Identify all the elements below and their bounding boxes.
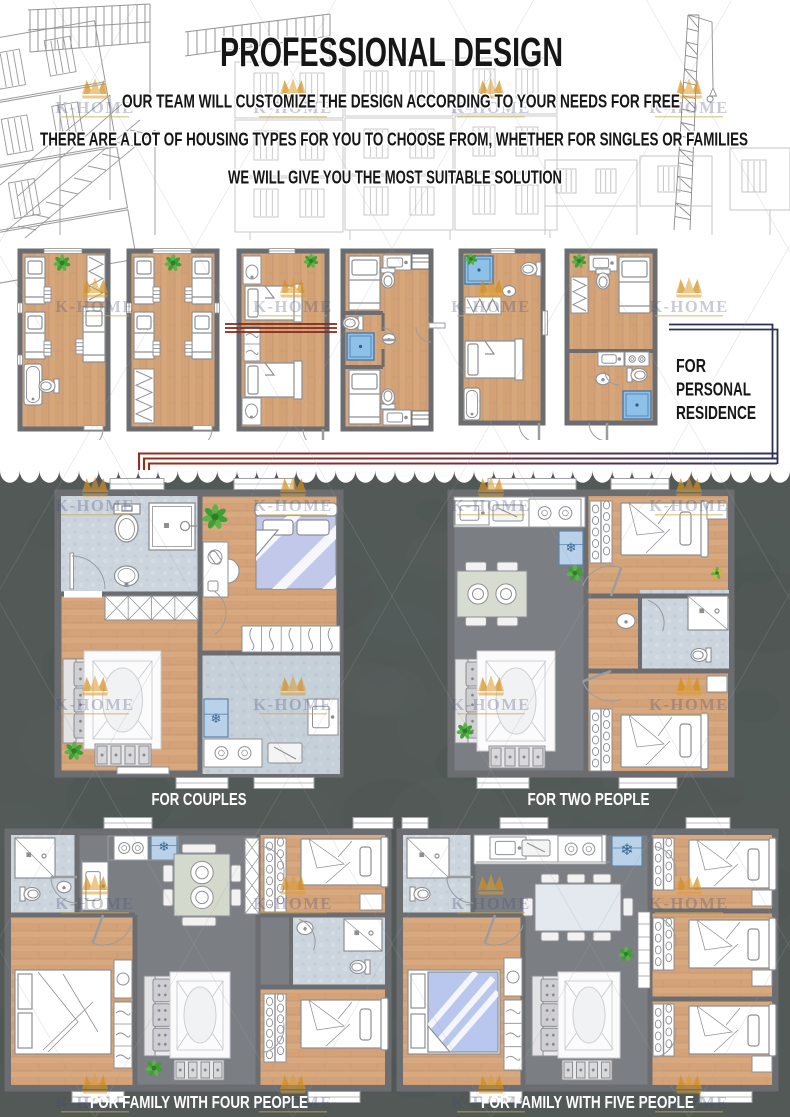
svg-text:WE WILL GIVE YOU THE MOST SUIT: WE WILL GIVE YOU THE MOST SUITABLE SOLUT… [228,167,562,188]
svg-text:RESIDENCE: RESIDENCE [676,402,756,423]
svg-text:PROFESSIONAL DESIGN: PROFESSIONAL DESIGN [220,29,563,75]
svg-text:FOR FAMILY WITH FIVE PEOPLE: FOR FAMILY WITH FIVE PEOPLE [481,1092,694,1112]
svg-text:OUR TEAM WILL CUSTOMIZE THE DE: OUR TEAM WILL CUSTOMIZE THE DESIGN ACCOR… [122,91,680,112]
svg-text:PERSONAL: PERSONAL [676,379,751,400]
svg-text:THERE ARE A LOT OF HOUSING TYP: THERE ARE A LOT OF HOUSING TYPES FOR YOU… [40,129,748,150]
svg-text:FOR TWO PEOPLE: FOR TWO PEOPLE [528,789,650,809]
svg-text:FOR: FOR [676,355,706,376]
svg-text:FOR COUPLES: FOR COUPLES [152,789,247,809]
svg-text:FOR FAMILY WITH FOUR PEOPLE: FOR FAMILY WITH FOUR PEOPLE [90,1092,308,1112]
